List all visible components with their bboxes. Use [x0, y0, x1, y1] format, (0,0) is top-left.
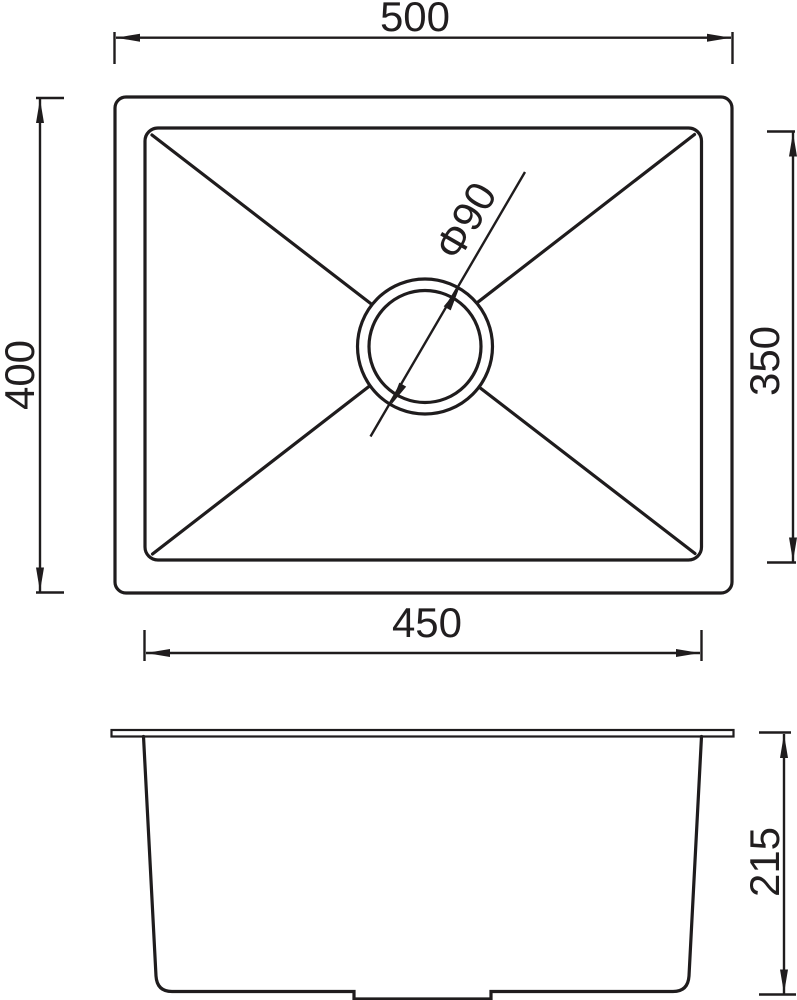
dim-inner-width-arrow-right-icon [676, 649, 700, 657]
dim-depth-label: 215 [741, 827, 788, 897]
dim-inner-width-arrow-left-icon [146, 649, 170, 657]
drain-outer-circle [358, 279, 493, 414]
dim-outer-height-arrow-down-icon [36, 568, 44, 592]
side-view: 215 [112, 730, 797, 999]
dim-inner-width: 450 [145, 599, 702, 661]
dim-outer-width-arrow-right-icon [707, 34, 731, 42]
dim-outer-height-arrow-up-icon [36, 99, 44, 123]
top-view: Φ90 500 400 350 [0, 0, 797, 661]
dim-inner-height-label: 350 [741, 326, 788, 396]
dim-depth-arrow-down-icon [780, 970, 788, 994]
dim-outer-width-label: 500 [380, 0, 450, 40]
dim-depth-arrow-up-icon [780, 734, 788, 758]
dim-outer-height-label: 400 [0, 340, 43, 410]
sink-technical-drawing: Φ90 500 400 350 [0, 0, 797, 1000]
dim-outer-height: 400 [0, 98, 64, 593]
dim-outer-width-arrow-left-icon [116, 34, 140, 42]
dim-inner-height-arrow-down-icon [789, 538, 797, 562]
sink-rim-flange [112, 730, 734, 737]
dim-inner-height-arrow-up-icon [789, 133, 797, 157]
sink-basin-profile [144, 737, 702, 1000]
dim-depth: 215 [741, 733, 796, 995]
dim-inner-width-label: 450 [392, 599, 462, 646]
dim-inner-height: 350 [741, 132, 797, 563]
dim-outer-width: 500 [115, 0, 733, 64]
